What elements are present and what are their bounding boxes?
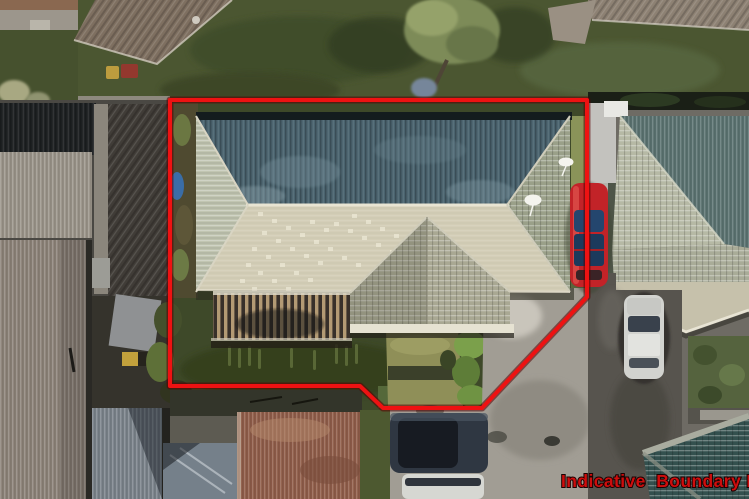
left-neighbor-structures	[0, 100, 170, 499]
metal-shed-roof	[163, 443, 237, 499]
silver-car	[618, 292, 670, 384]
grass-strip	[360, 410, 390, 499]
hazard-panel	[122, 352, 138, 366]
grey-box	[92, 258, 110, 288]
top-left-paving	[0, 0, 78, 108]
boundary-label: Indicative Boundary Line	[561, 471, 749, 491]
navy-car	[390, 413, 488, 473]
right-neighbor	[588, 92, 749, 499]
pergola	[211, 291, 352, 348]
yellow-bin	[106, 66, 119, 79]
grey-bush	[411, 78, 437, 98]
rusty-shed-roof	[237, 412, 360, 499]
blue-shed-roof	[92, 408, 162, 499]
aerial-photo: Indicative Boundary Line	[0, 0, 749, 499]
top-yards	[0, 0, 749, 108]
small-shed-roof	[109, 294, 162, 352]
hedge	[688, 336, 749, 424]
red-bin	[121, 64, 138, 78]
white-car	[402, 474, 484, 499]
